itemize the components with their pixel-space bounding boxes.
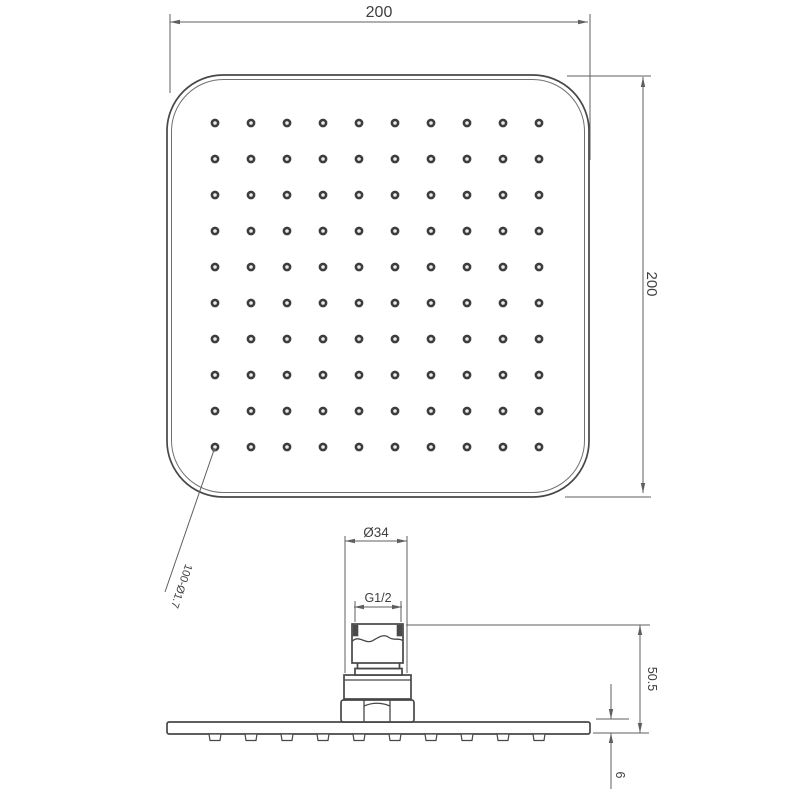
nozzle-hole: [356, 444, 362, 450]
nozzle-hole: [392, 372, 398, 378]
nozzle-hole: [428, 192, 434, 198]
nozzle-hole: [392, 120, 398, 126]
nozzle-hole: [356, 156, 362, 162]
nozzle-hole: [356, 264, 362, 270]
nozzle-hole: [284, 120, 290, 126]
nozzle-hole: [212, 192, 218, 198]
nozzle-hole: [500, 156, 506, 162]
nozzle-hole: [464, 300, 470, 306]
nozzle-hole: [248, 228, 254, 234]
top-width-label: 200: [366, 4, 393, 21]
nozzle-hole: [464, 264, 470, 270]
connector-diameter-label: Ø34: [363, 525, 389, 540]
nozzle-hole: [284, 408, 290, 414]
nozzle-hole: [428, 372, 434, 378]
connector-neck-ring: [355, 669, 402, 676]
nozzle-hole: [248, 192, 254, 198]
nozzle-hole: [248, 444, 254, 450]
nozzle-hole: [320, 120, 326, 126]
nozzle-hole: [464, 120, 470, 126]
nozzle-hole: [356, 336, 362, 342]
nozzle-hole: [320, 444, 326, 450]
nozzle-hole: [212, 336, 218, 342]
leader-dot: [212, 448, 216, 452]
nozzle-hole: [428, 156, 434, 162]
nozzle-hole: [212, 300, 218, 306]
thread-hatch-left: [353, 625, 359, 637]
nozzle-hole: [392, 264, 398, 270]
nozzle-hole: [320, 156, 326, 162]
nozzle-hole: [212, 408, 218, 414]
nozzle-hole: [320, 264, 326, 270]
nozzle-side: [353, 734, 365, 741]
nozzle-hole: [464, 156, 470, 162]
nozzle-hole: [248, 156, 254, 162]
nozzle-hole: [428, 264, 434, 270]
thread-hatch-right: [397, 625, 403, 637]
technical-drawing-shower-head: 200 200 100-Ø1.7: [0, 0, 800, 800]
nozzle-hole: [284, 228, 290, 234]
nozzle-hole: [320, 372, 326, 378]
nozzle-side: [461, 734, 473, 741]
nozzle-hole: [248, 264, 254, 270]
nozzle-hole: [212, 156, 218, 162]
nozzle-hole: [284, 300, 290, 306]
nozzle-hole: [536, 264, 542, 270]
nozzle-hole: [248, 408, 254, 414]
nozzle-hole: [356, 192, 362, 198]
holes-count-label: 100-Ø1.7: [168, 562, 194, 609]
nozzle-hole: [428, 120, 434, 126]
connector-height-label: 50.5: [645, 667, 659, 691]
nozzle-hole: [536, 408, 542, 414]
nozzle-hole: [248, 372, 254, 378]
nozzle-hole: [320, 336, 326, 342]
nozzle-hole: [500, 336, 506, 342]
nozzle-side: [389, 734, 401, 741]
nozzle-hole: [284, 264, 290, 270]
nozzle-hole: [428, 228, 434, 234]
nozzle-side: [245, 734, 257, 741]
head-face-outer-edge: [167, 75, 589, 497]
side-nozzles: [209, 734, 545, 741]
nozzle-side: [281, 734, 293, 741]
nozzle-hole: [284, 444, 290, 450]
plate-thickness-label: 6: [613, 772, 627, 779]
connector-collar: [344, 675, 411, 699]
nozzle-side: [497, 734, 509, 741]
nozzle-side: [317, 734, 329, 741]
nozzle-hole: [356, 120, 362, 126]
nozzle-hole: [320, 192, 326, 198]
arrowhead: [578, 20, 588, 24]
nozzle-hole: [428, 336, 434, 342]
nozzle-hole: [500, 264, 506, 270]
side-height-label: 200: [643, 271, 660, 296]
nozzle-hole: [212, 120, 218, 126]
thread-label: G1/2: [364, 591, 391, 605]
arrowhead: [638, 723, 642, 733]
nozzle-hole: [428, 300, 434, 306]
nozzle-hole: [392, 156, 398, 162]
nozzle-side: [425, 734, 437, 741]
nozzle-hole: [320, 228, 326, 234]
nozzle-hole: [320, 408, 326, 414]
nozzle-hole: [428, 444, 434, 450]
nozzle-hole: [536, 156, 542, 162]
nozzle-hole: [248, 300, 254, 306]
nozzle-hole: [536, 372, 542, 378]
nozzle-hole: [284, 156, 290, 162]
nozzle-hole: [392, 444, 398, 450]
nozzle-hole: [500, 372, 506, 378]
nozzle-hole: [536, 444, 542, 450]
nozzle-hole: [284, 336, 290, 342]
nozzle-hole: [500, 444, 506, 450]
nozzle-hole: [500, 408, 506, 414]
nozzle-hole: [284, 192, 290, 198]
nozzle-hole: [500, 120, 506, 126]
arrowhead: [641, 483, 645, 493]
nozzle-hole: [212, 264, 218, 270]
nozzle-hole: [536, 300, 542, 306]
nozzle-hole: [392, 408, 398, 414]
nozzle-hole: [212, 372, 218, 378]
arrowhead: [609, 709, 613, 719]
nozzle-hole: [356, 228, 362, 234]
nozzle-hole: [536, 120, 542, 126]
inlet-pipe: [352, 624, 403, 663]
nozzle-hole: [536, 336, 542, 342]
nozzle-hole: [284, 372, 290, 378]
nozzle-hole: [392, 192, 398, 198]
nozzle-hole: [536, 228, 542, 234]
nozzle-hole: [392, 336, 398, 342]
nozzle-hole: [248, 120, 254, 126]
side-view: [167, 624, 590, 741]
nozzle-hole: [500, 192, 506, 198]
nozzle-hole: [464, 336, 470, 342]
arrowhead: [397, 539, 407, 543]
nozzle-hole: [464, 192, 470, 198]
nozzle-hole: [464, 372, 470, 378]
nozzle-hole: [320, 300, 326, 306]
nozzle-hole: [464, 444, 470, 450]
nozzle-hole: [392, 228, 398, 234]
drawing-sheet: 200 200 100-Ø1.7: [0, 0, 800, 800]
arrowhead: [170, 20, 180, 24]
nozzle-side: [209, 734, 221, 741]
nozzle-hole: [536, 192, 542, 198]
nozzle-side: [533, 734, 545, 741]
nozzle-hole: [428, 408, 434, 414]
nozzle-hole: [464, 408, 470, 414]
nozzle-hole: [500, 228, 506, 234]
nozzle-hole: [392, 300, 398, 306]
nozzle-hole: [248, 336, 254, 342]
nozzle-hole: [356, 372, 362, 378]
nozzle-hole: [212, 228, 218, 234]
nozzle-hole: [500, 300, 506, 306]
nozzle-hole: [356, 300, 362, 306]
nozzle-hole: [464, 228, 470, 234]
top-view: [167, 75, 589, 497]
arrowhead: [638, 625, 642, 635]
nozzle-hole: [356, 408, 362, 414]
arrowhead: [609, 733, 613, 743]
head-plate-side: [167, 722, 590, 734]
arrowhead: [345, 539, 355, 543]
arrowhead: [641, 77, 645, 87]
